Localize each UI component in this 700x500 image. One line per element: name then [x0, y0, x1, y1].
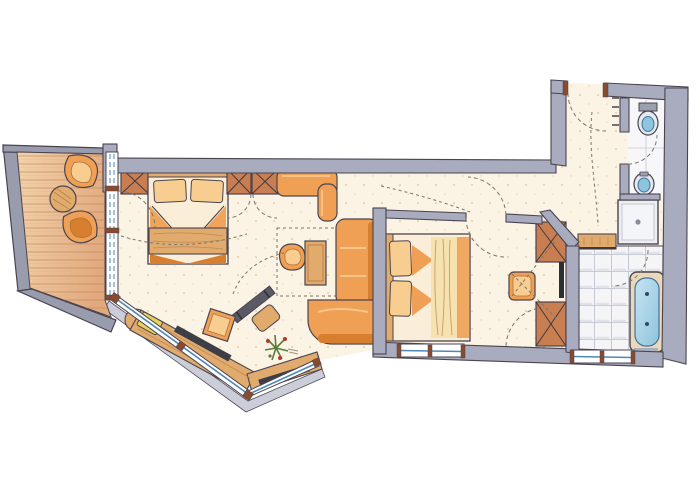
dressing-mirror	[559, 262, 564, 298]
bathtub	[630, 272, 664, 353]
bed2-pillow-top	[389, 241, 411, 277]
shower-drain	[635, 219, 640, 224]
armchair	[280, 244, 306, 270]
bathroom-window	[570, 350, 635, 364]
dressing-stool	[509, 272, 535, 300]
wall-wc-left-upper	[620, 98, 629, 132]
bidet-tap	[640, 172, 648, 176]
toilet	[638, 103, 658, 135]
wall-bedroom2-top-right	[506, 214, 542, 224]
chaise-backrest	[318, 334, 376, 343]
bed2-foot-fold	[457, 237, 469, 338]
floor-plan-canvas	[0, 0, 700, 500]
wall-bathroom-left	[566, 246, 579, 354]
shower-room	[618, 200, 658, 244]
wall-wc-left-lower	[620, 164, 629, 198]
wall-top-main	[105, 158, 556, 173]
side-table	[305, 241, 326, 285]
double-bed-1	[148, 170, 228, 264]
wardrobe-bedroom2	[536, 302, 566, 346]
bed1-pillow-right	[190, 179, 223, 203]
bedroom2-window	[397, 344, 465, 358]
bathtub-basin	[635, 278, 659, 346]
bed2-pillow-bottom	[389, 281, 411, 317]
balcony-round-table	[50, 186, 76, 212]
bidet	[634, 172, 654, 195]
double-bed-2	[385, 234, 470, 341]
bed1-pillow-left	[153, 179, 186, 203]
wall-wc-shower-divider	[620, 194, 660, 200]
wall-right-outer	[662, 88, 688, 364]
toilet-cistern	[639, 103, 657, 111]
floor-plan-drawing	[0, 0, 700, 500]
wall-bedroom2-left	[373, 208, 386, 354]
